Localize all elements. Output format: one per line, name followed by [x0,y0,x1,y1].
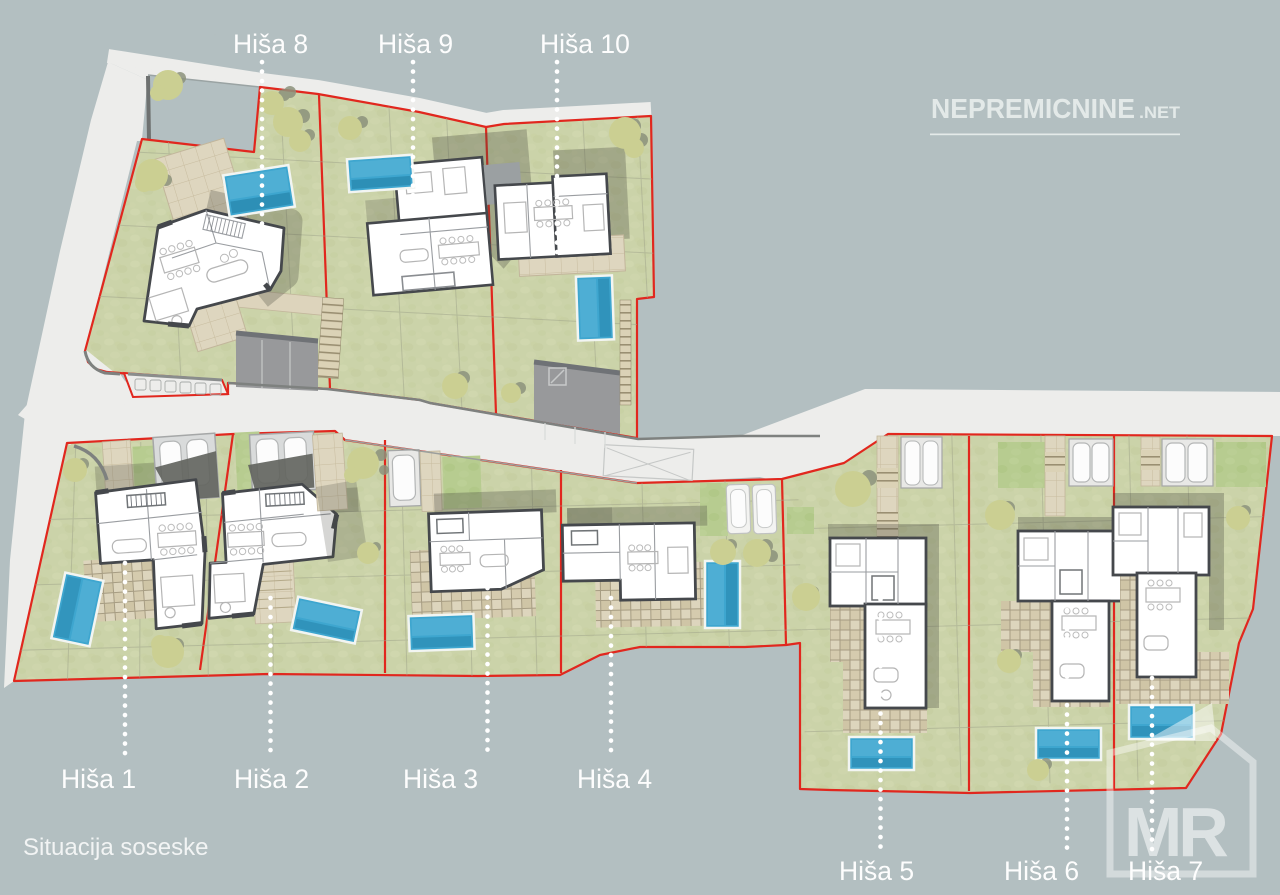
svg-text:Hiša 8: Hiša 8 [233,29,308,59]
svg-text:Hiša 6: Hiša 6 [1004,856,1079,886]
svg-text:Hiša 10: Hiša 10 [540,29,630,59]
svg-text:Hiša 2: Hiša 2 [234,764,309,794]
svg-text:Hiša 3: Hiša 3 [403,764,478,794]
svg-text:.NET: .NET [1139,104,1180,122]
svg-text:Hiša 4: Hiša 4 [577,764,652,794]
svg-text:NEPREMICNINE: NEPREMICNINE [931,93,1135,124]
svg-text:MR: MR [1124,793,1228,871]
svg-text:Situacija soseske: Situacija soseske [23,834,208,861]
svg-text:Hiša 5: Hiša 5 [839,856,914,886]
svg-text:Hiša 9: Hiša 9 [378,29,453,59]
svg-text:Hiša 1: Hiša 1 [61,764,136,794]
